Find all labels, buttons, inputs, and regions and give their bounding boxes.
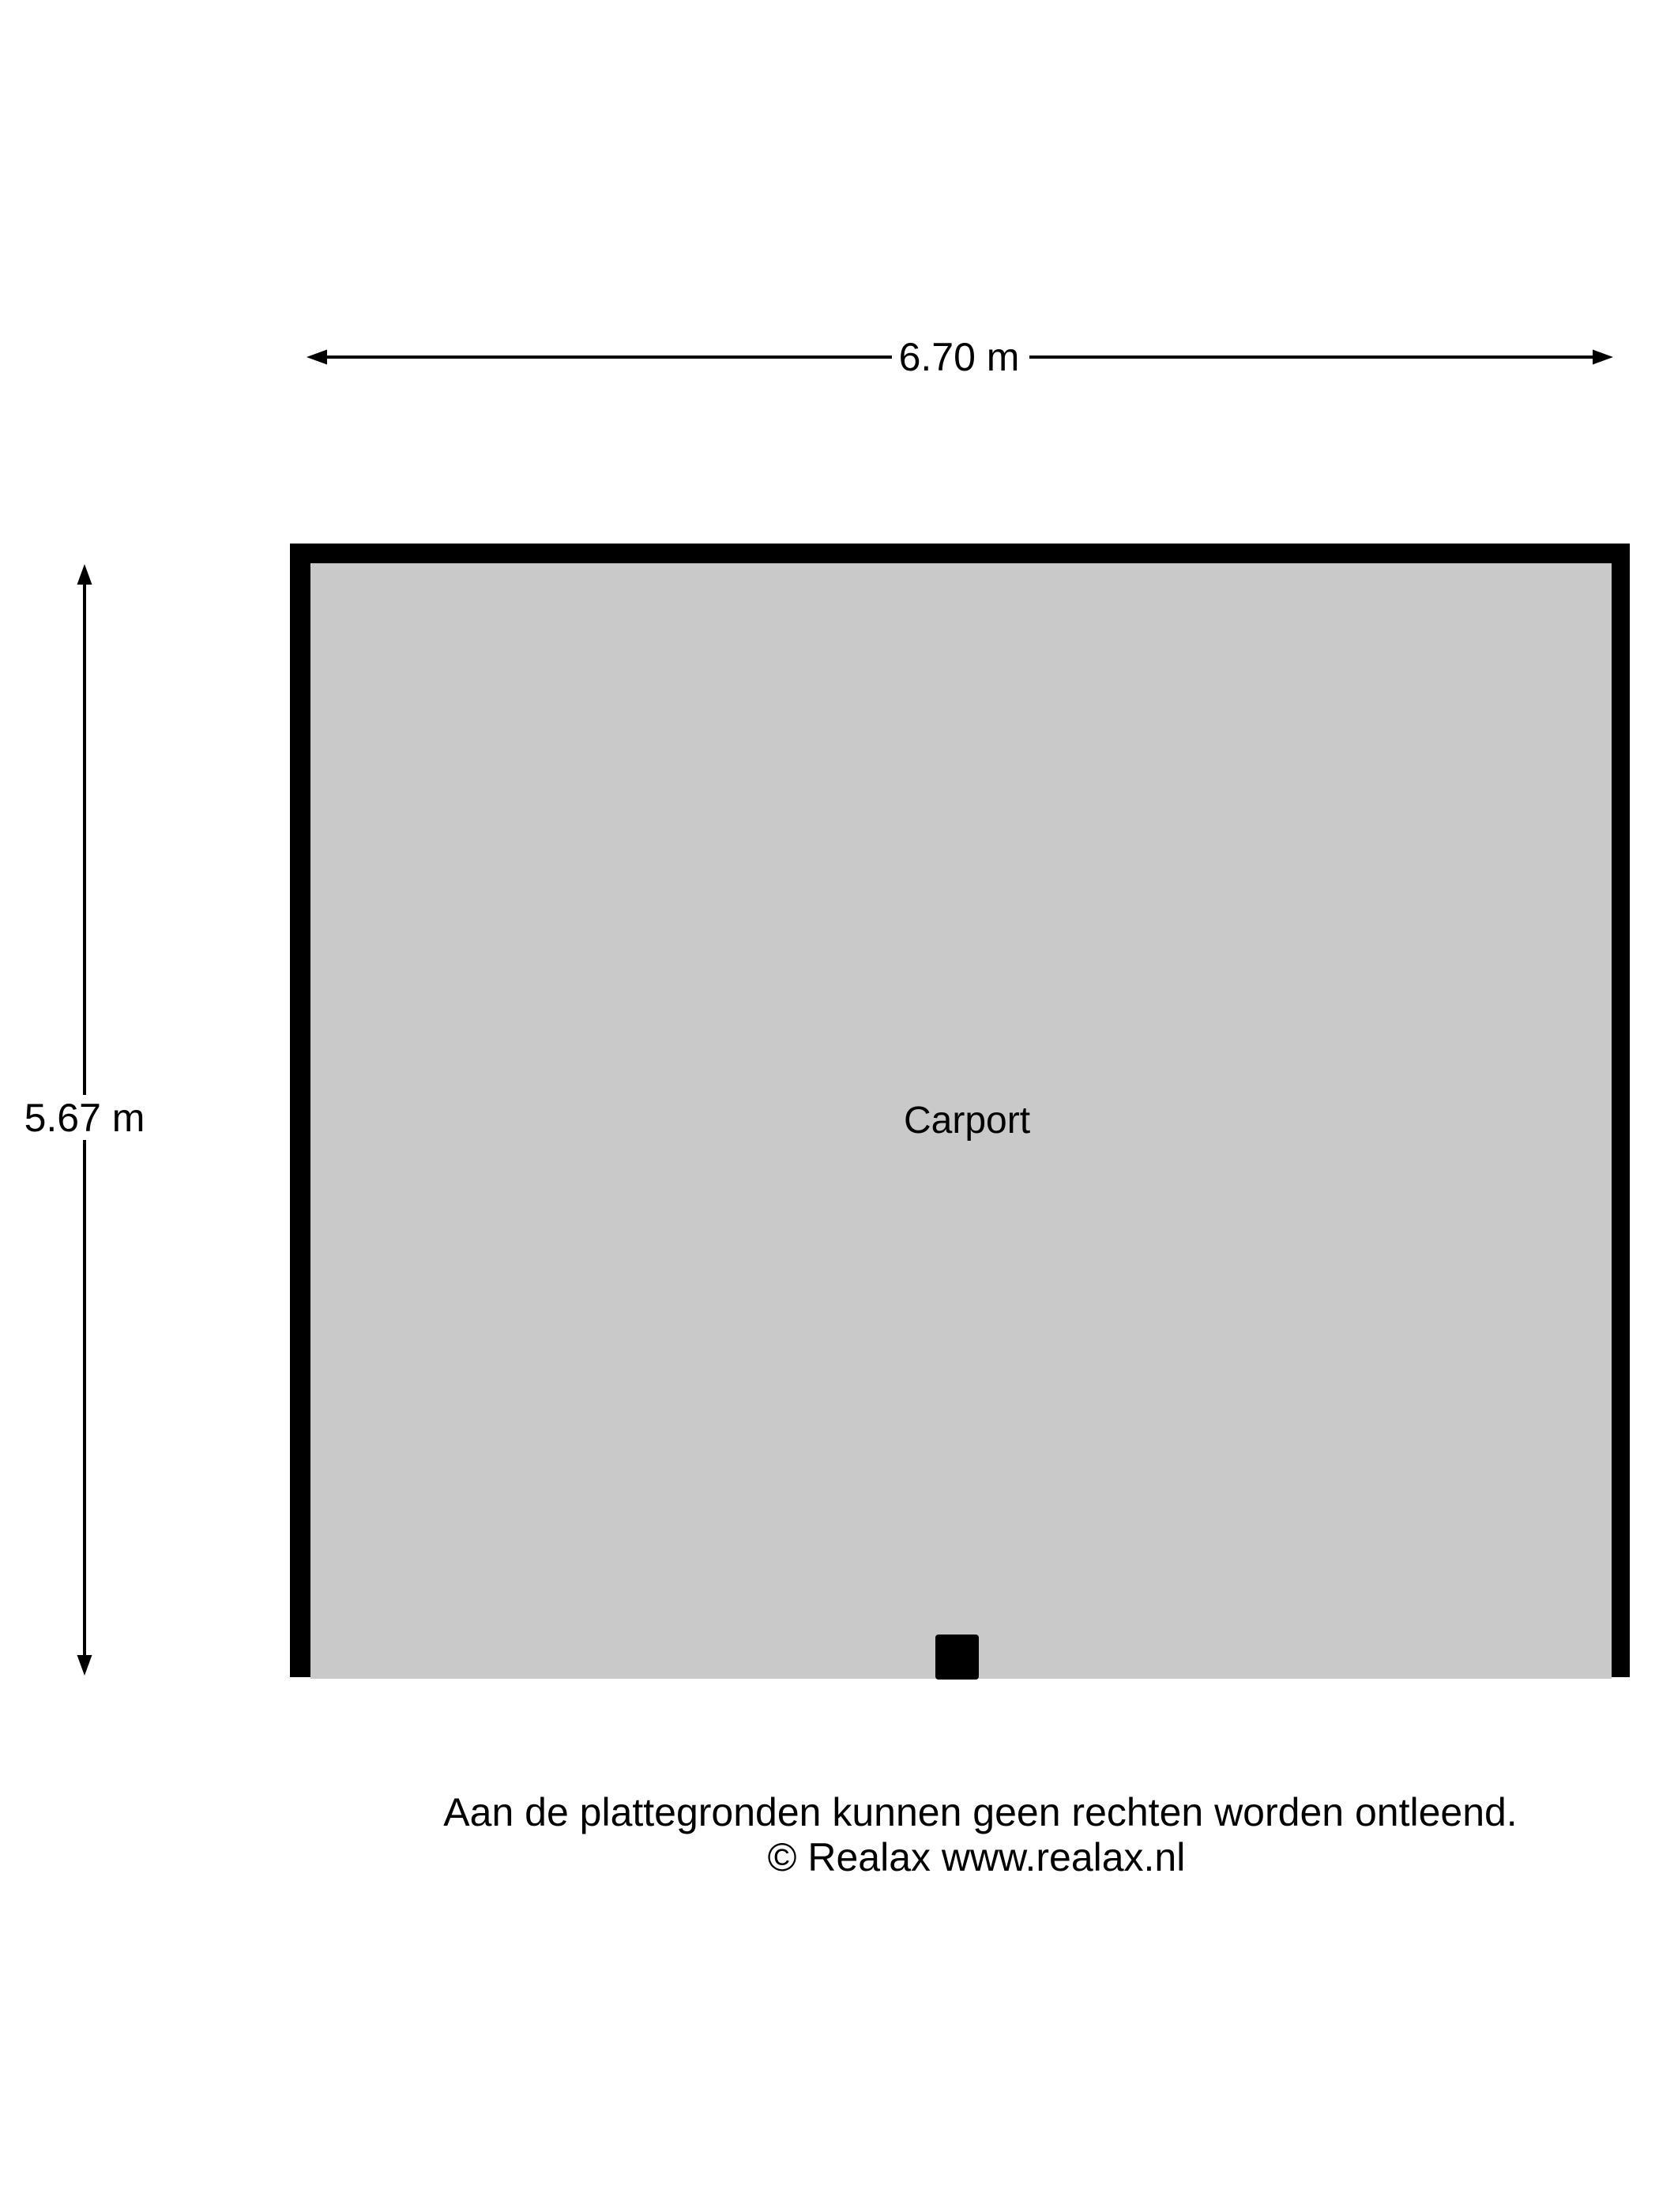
svg-text:6.70 m: 6.70 m	[899, 335, 1020, 379]
svg-text:© Realax www.realax.nl: © Realax www.realax.nl	[768, 1835, 1186, 1879]
svg-text:5.67 m: 5.67 m	[24, 1096, 145, 1140]
svg-text:Carport: Carport	[904, 1100, 1030, 1142]
svg-text:Aan de plattegronden kunnen ge: Aan de plattegronden kunnen geen rechten…	[443, 1790, 1517, 1834]
